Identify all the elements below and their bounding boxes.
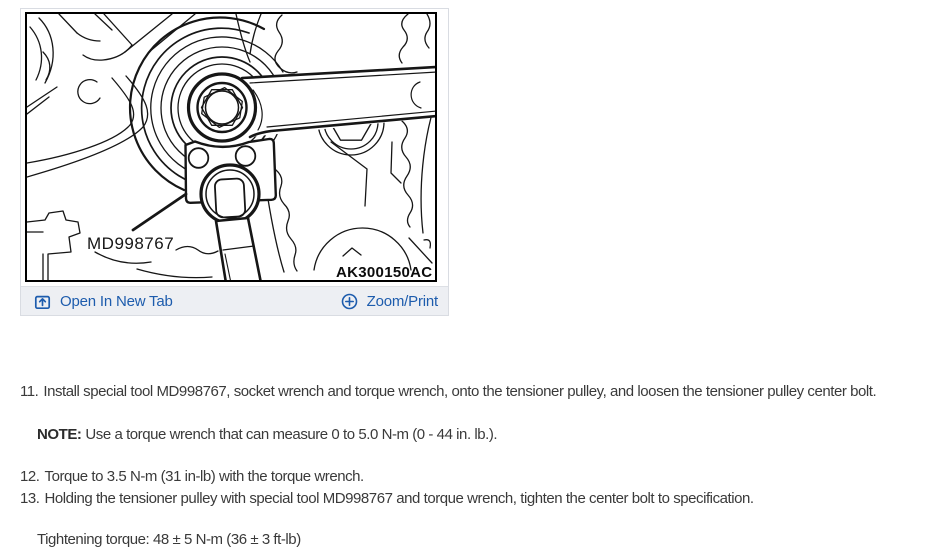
socket-wrench [201, 165, 261, 280]
zoom-print-link[interactable]: Zoom/Print [341, 293, 438, 310]
step-11-text: Install special tool MD998767, socket wr… [43, 383, 876, 400]
figure-code-label: AK300150AC [336, 264, 432, 280]
note-line: NOTE:Use a torque wrench that can measur… [37, 426, 497, 443]
open-in-new-tab-label: Open In New Tab [60, 293, 173, 310]
circle-plus-icon [341, 293, 358, 310]
step-12-text: Torque to 3.5 N-m (31 in-lb) with the to… [45, 468, 364, 485]
step-12: 12.Torque to 3.5 N-m (31 in-lb) with the… [20, 468, 364, 485]
diagram-frame: MD998767 AK300150AC [25, 12, 437, 282]
step-13-number: 13. [20, 490, 40, 507]
note-text: Use a torque wrench that can measure 0 t… [85, 426, 497, 443]
step-11: 11.Install special tool MD998767, socket… [20, 383, 876, 400]
media-toolbar: Open In New Tab Zoom/Print [21, 286, 448, 315]
open-in-new-tab-link[interactable]: Open In New Tab [34, 293, 173, 310]
step-11-number: 11. [20, 383, 38, 400]
torque-spec-text: Tightening torque: 48 ± 5 N-m (36 ± 3 ft… [37, 531, 301, 548]
zoom-print-label: Zoom/Print [367, 293, 438, 310]
torque-spec: Tightening torque: 48 ± 5 N-m (36 ± 3 ft… [37, 531, 301, 548]
diagram-card: MD998767 AK300150AC Open In New Tab Zoom… [20, 8, 449, 316]
step-13: 13.Holding the tensioner pulley with spe… [20, 490, 754, 507]
technical-diagram: MD998767 AK300150AC [27, 14, 435, 280]
leader-line [133, 194, 186, 230]
tool-label: MD998767 [87, 234, 174, 253]
step-13-text: Holding the tensioner pulley with specia… [45, 490, 754, 507]
open-in-new-tab-icon [34, 293, 51, 310]
note-label: NOTE: [37, 426, 81, 443]
step-12-number: 12. [20, 468, 40, 485]
wrench-ring [189, 74, 256, 141]
